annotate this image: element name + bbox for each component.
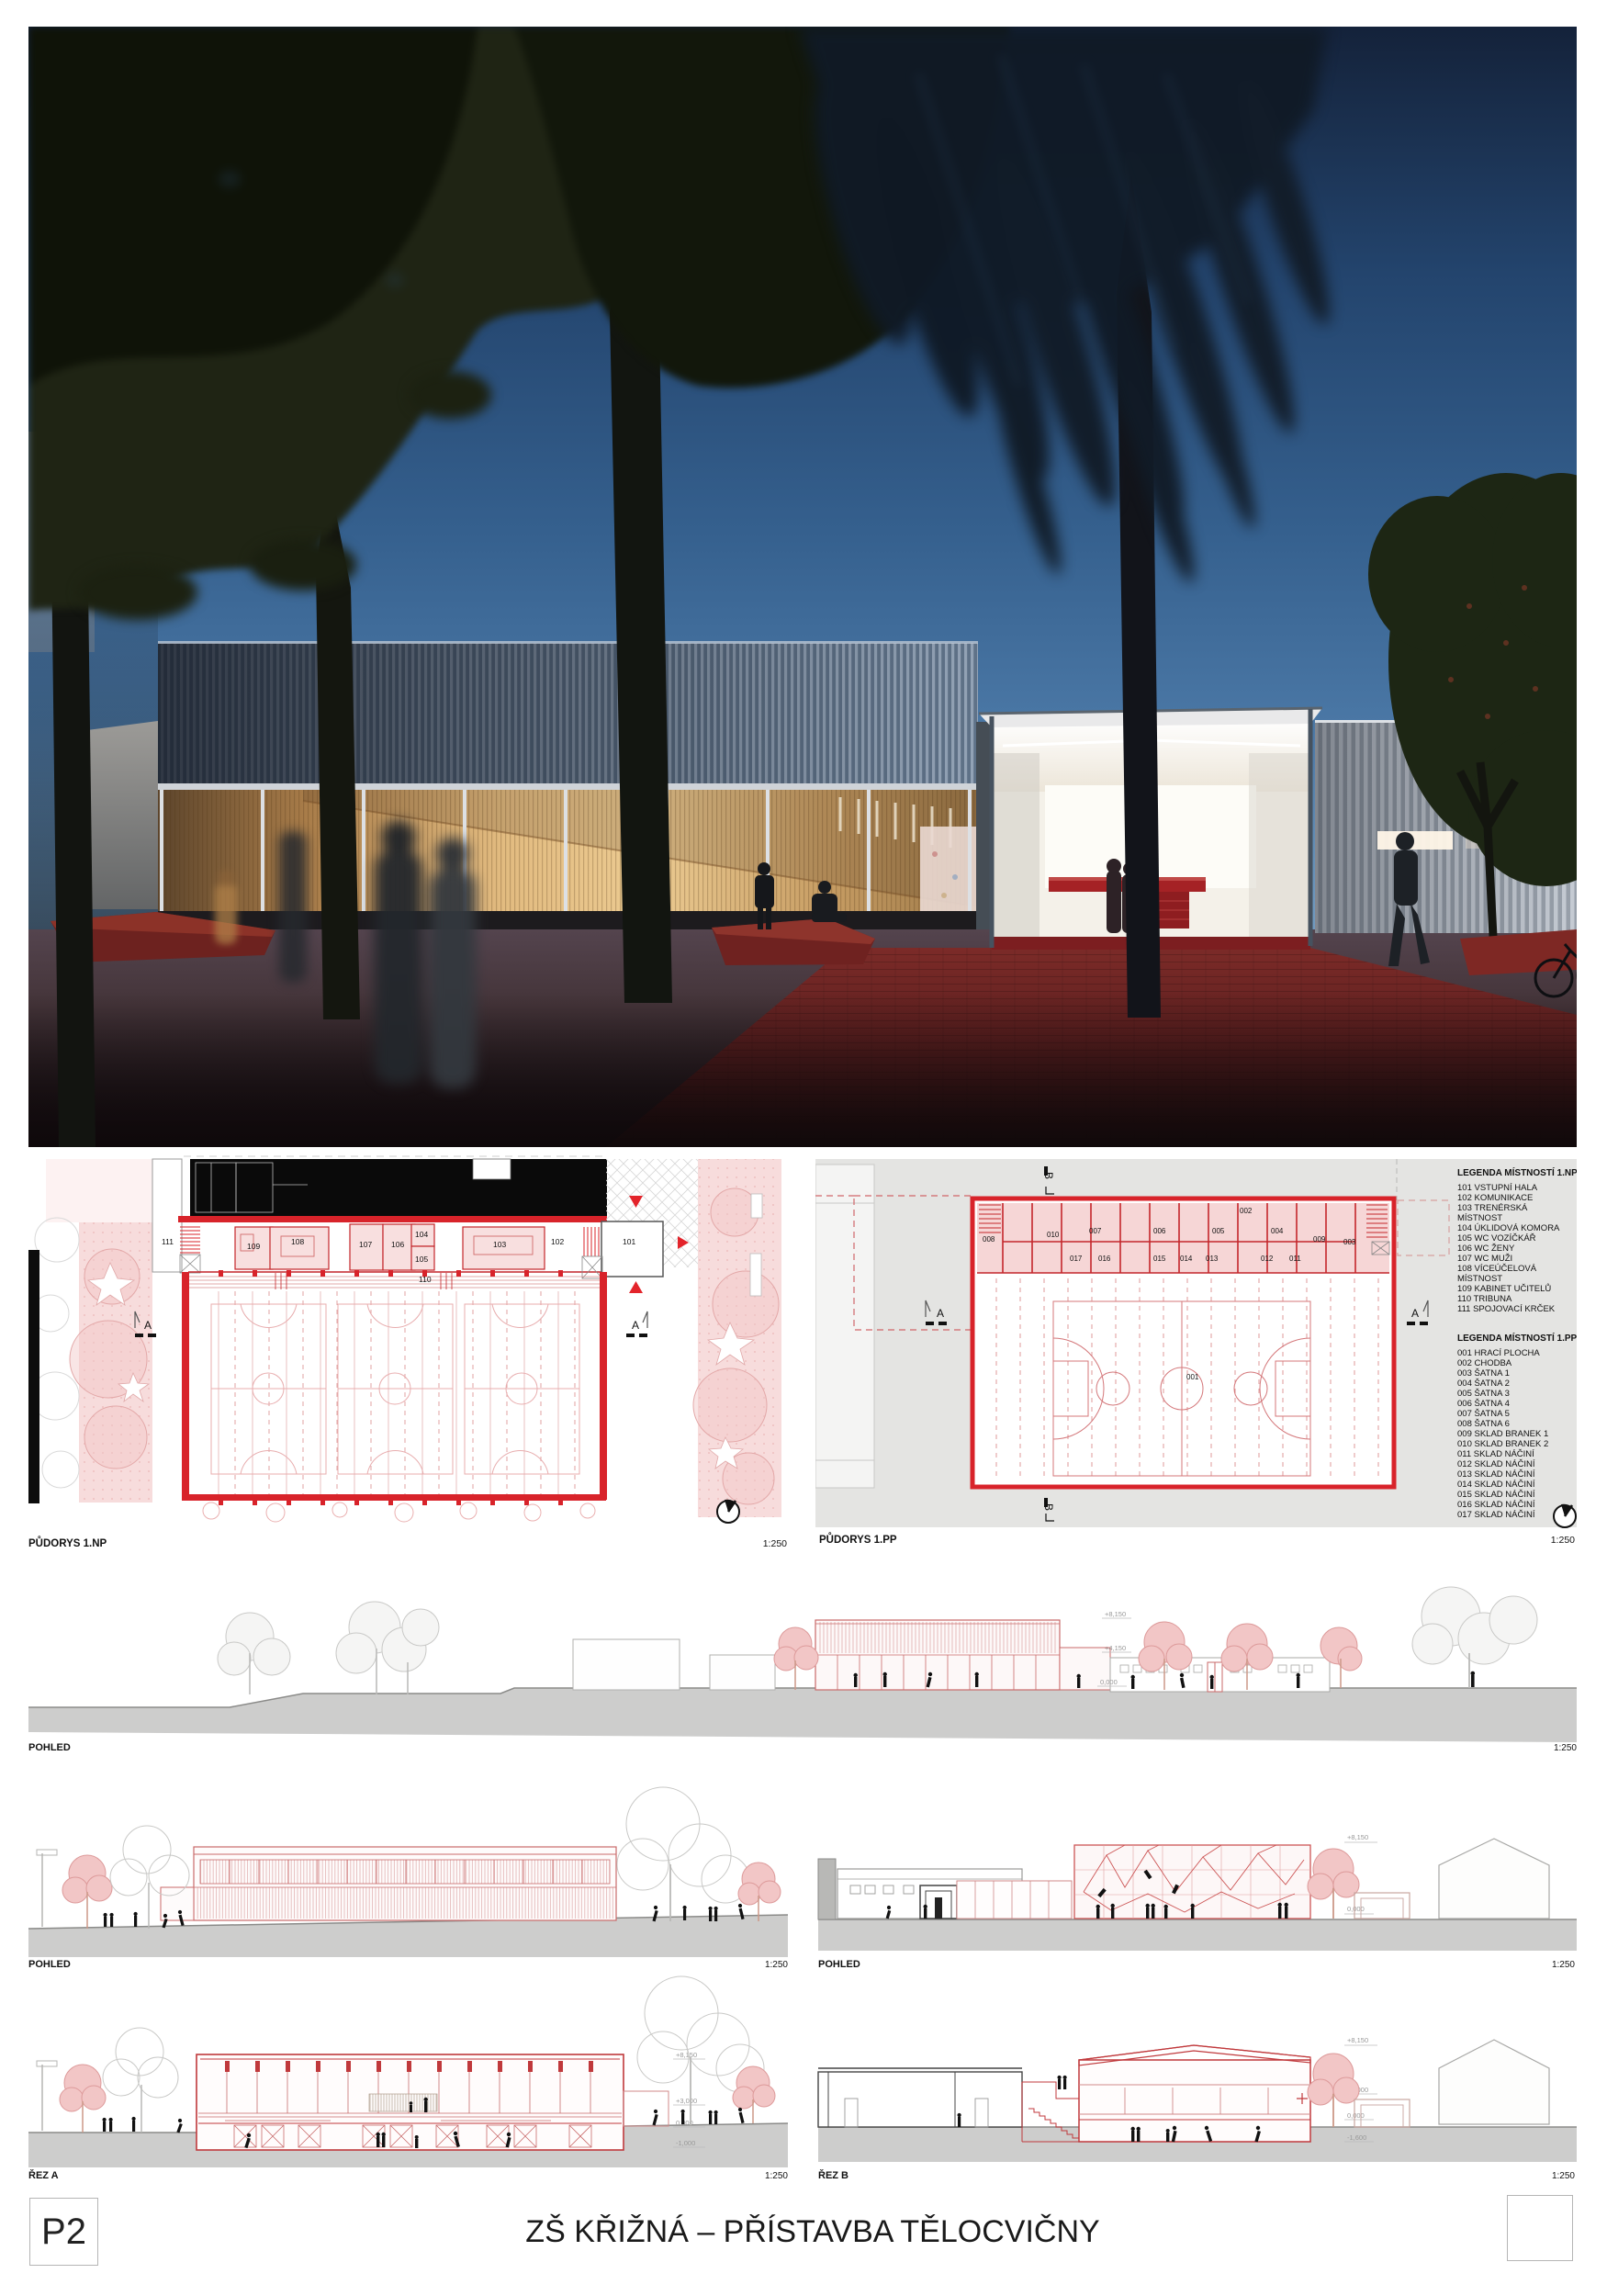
svg-text:006 ŠATNA 4: 006 ŠATNA 4 (1457, 1399, 1510, 1409)
svg-text:+4,150: +4,150 (1105, 1644, 1126, 1652)
svg-text:007 ŠATNA 5: 007 ŠATNA 5 (1457, 1409, 1510, 1419)
svg-text:109 KABINET UČITELŮ: 109 KABINET UČITELŮ (1457, 1283, 1551, 1294)
svg-text:006: 006 (1153, 1227, 1166, 1235)
svg-text:001 HRACÍ PLOCHA: 001 HRACÍ PLOCHA (1457, 1348, 1540, 1358)
svg-text:B: B (1042, 1172, 1055, 1179)
svg-text:A: A (144, 1319, 152, 1332)
svg-text:008 ŠATNA 6: 008 ŠATNA 6 (1457, 1419, 1510, 1429)
svg-text:101 VSTUPNÍ HALA: 101 VSTUPNÍ HALA (1457, 1183, 1538, 1193)
svg-text:103: 103 (493, 1240, 506, 1249)
svg-text:109: 109 (247, 1242, 260, 1251)
svg-text:MÍSTNOST: MÍSTNOST (1457, 1213, 1502, 1223)
svg-text:017 SKLAD NÁČINÍ: 017 SKLAD NÁČINÍ (1457, 1510, 1535, 1520)
svg-text:B: B (1042, 1503, 1055, 1511)
svg-text:+8,150: +8,150 (676, 2051, 697, 2059)
svg-text:A: A (632, 1319, 639, 1332)
svg-text:005: 005 (1212, 1227, 1225, 1235)
svg-text:107: 107 (359, 1240, 372, 1249)
svg-text:014: 014 (1180, 1255, 1193, 1263)
svg-text:-1,000: -1,000 (676, 2139, 695, 2147)
svg-text:103 TRENÉRSKÁ: 103 TRENÉRSKÁ (1457, 1203, 1528, 1213)
svg-text:1:250: 1:250 (763, 1538, 787, 1549)
svg-text:0,000: 0,000 (1100, 1678, 1118, 1686)
svg-text:008: 008 (983, 1235, 995, 1244)
svg-text:1:250: 1:250 (1552, 2171, 1575, 2181)
svg-text:005 ŠATNA 3: 005 ŠATNA 3 (1457, 1389, 1510, 1399)
svg-text:ŘEZ B: ŘEZ B (818, 2169, 848, 2181)
svg-text:012 SKLAD NÁČINÍ: 012 SKLAD NÁČINÍ (1457, 1459, 1535, 1469)
svg-text:1:250: 1:250 (1554, 1743, 1577, 1753)
svg-text:+8,150: +8,150 (1347, 1833, 1368, 1841)
svg-text:104: 104 (415, 1230, 428, 1239)
svg-text:108 VÍCEÚČELOVÁ: 108 VÍCEÚČELOVÁ (1457, 1264, 1537, 1274)
svg-text:007: 007 (1089, 1227, 1102, 1235)
svg-text:105 WC VOZÍČKÁŘ: 105 WC VOZÍČKÁŘ (1457, 1233, 1536, 1244)
svg-text:001: 001 (1186, 1373, 1199, 1381)
svg-text:004: 004 (1271, 1227, 1284, 1235)
svg-text:+8,150: +8,150 (1105, 1610, 1126, 1618)
svg-text:017: 017 (1070, 1255, 1083, 1263)
svg-text:PŮDORYS 1.NP: PŮDORYS 1.NP (28, 1536, 107, 1549)
svg-text:LEGENDA MÍSTNOSTÍ 1.NP: LEGENDA MÍSTNOSTÍ 1.NP (1457, 1166, 1577, 1178)
svg-text:011: 011 (1289, 1255, 1301, 1263)
svg-text:106 WC ŽENY: 106 WC ŽENY (1457, 1244, 1515, 1254)
svg-text:106: 106 (391, 1240, 404, 1249)
svg-text:010: 010 (1047, 1231, 1060, 1239)
svg-text:009: 009 (1313, 1235, 1326, 1244)
svg-text:105: 105 (415, 1255, 428, 1264)
svg-text:110: 110 (419, 1275, 432, 1284)
svg-text:111 SPOJOVACÍ KRČEK: 111 SPOJOVACÍ KRČEK (1457, 1304, 1556, 1314)
svg-text:003 ŠATNA 1: 003 ŠATNA 1 (1457, 1368, 1510, 1379)
svg-text:0,000: 0,000 (1347, 2111, 1365, 2120)
svg-text:108: 108 (291, 1237, 304, 1246)
svg-text:ŘEZ A: ŘEZ A (28, 2169, 59, 2181)
svg-text:002: 002 (1240, 1207, 1253, 1215)
svg-text:102 KOMUNIKACE: 102 KOMUNIKACE (1457, 1193, 1533, 1203)
svg-text:013: 013 (1206, 1255, 1219, 1263)
svg-text:A: A (1411, 1307, 1419, 1320)
svg-text:011 SKLAD NÁČINÍ: 011 SKLAD NÁČINÍ (1457, 1449, 1534, 1459)
svg-text:PŮDORYS 1.PP: PŮDORYS 1.PP (819, 1533, 897, 1546)
svg-text:1:250: 1:250 (765, 2171, 788, 2181)
svg-text:012: 012 (1261, 1255, 1274, 1263)
svg-text:016 SKLAD NÁČINÍ: 016 SKLAD NÁČINÍ (1457, 1500, 1535, 1510)
svg-text:102: 102 (551, 1237, 564, 1246)
svg-text:107 WC MUŽI: 107 WC MUŽI (1457, 1254, 1512, 1264)
svg-text:015: 015 (1153, 1255, 1166, 1263)
svg-text:004 ŠATNA 2: 004 ŠATNA 2 (1457, 1379, 1510, 1389)
svg-text:013 SKLAD NÁČINÍ: 013 SKLAD NÁČINÍ (1457, 1469, 1535, 1480)
svg-text:A: A (937, 1307, 944, 1320)
svg-text:111: 111 (162, 1237, 174, 1246)
svg-text:014 SKLAD NÁČINÍ: 014 SKLAD NÁČINÍ (1457, 1480, 1535, 1490)
svg-text:003: 003 (1343, 1238, 1356, 1246)
svg-text:+3,000: +3,000 (676, 2097, 697, 2105)
svg-text:LEGENDA MÍSTNOSTÍ 1.PP: LEGENDA MÍSTNOSTÍ 1.PP (1457, 1332, 1577, 1344)
svg-text:010 SKLAD BRANEK 2: 010 SKLAD BRANEK 2 (1457, 1439, 1548, 1449)
svg-text:101: 101 (623, 1237, 635, 1246)
svg-text:-1,600: -1,600 (1347, 2133, 1366, 2142)
svg-text:016: 016 (1098, 1255, 1111, 1263)
svg-text:1:250: 1:250 (1551, 1535, 1575, 1546)
svg-text:POHLED: POHLED (28, 1742, 71, 1753)
svg-text:002 CHODBA: 002 CHODBA (1457, 1358, 1512, 1368)
svg-text:+8,150: +8,150 (1347, 2036, 1368, 2044)
svg-text:015 SKLAD NÁČINÍ: 015 SKLAD NÁČINÍ (1457, 1490, 1535, 1500)
svg-text:104 ÚKLIDOVÁ KOMORA: 104 ÚKLIDOVÁ KOMORA (1457, 1223, 1560, 1233)
svg-text:009 SKLAD BRANEK 1: 009 SKLAD BRANEK 1 (1457, 1429, 1548, 1439)
svg-text:110 TRIBUNA: 110 TRIBUNA (1457, 1294, 1512, 1304)
svg-text:MÍSTNOST: MÍSTNOST (1457, 1274, 1502, 1284)
svg-text:0,000: 0,000 (1347, 1905, 1365, 1913)
